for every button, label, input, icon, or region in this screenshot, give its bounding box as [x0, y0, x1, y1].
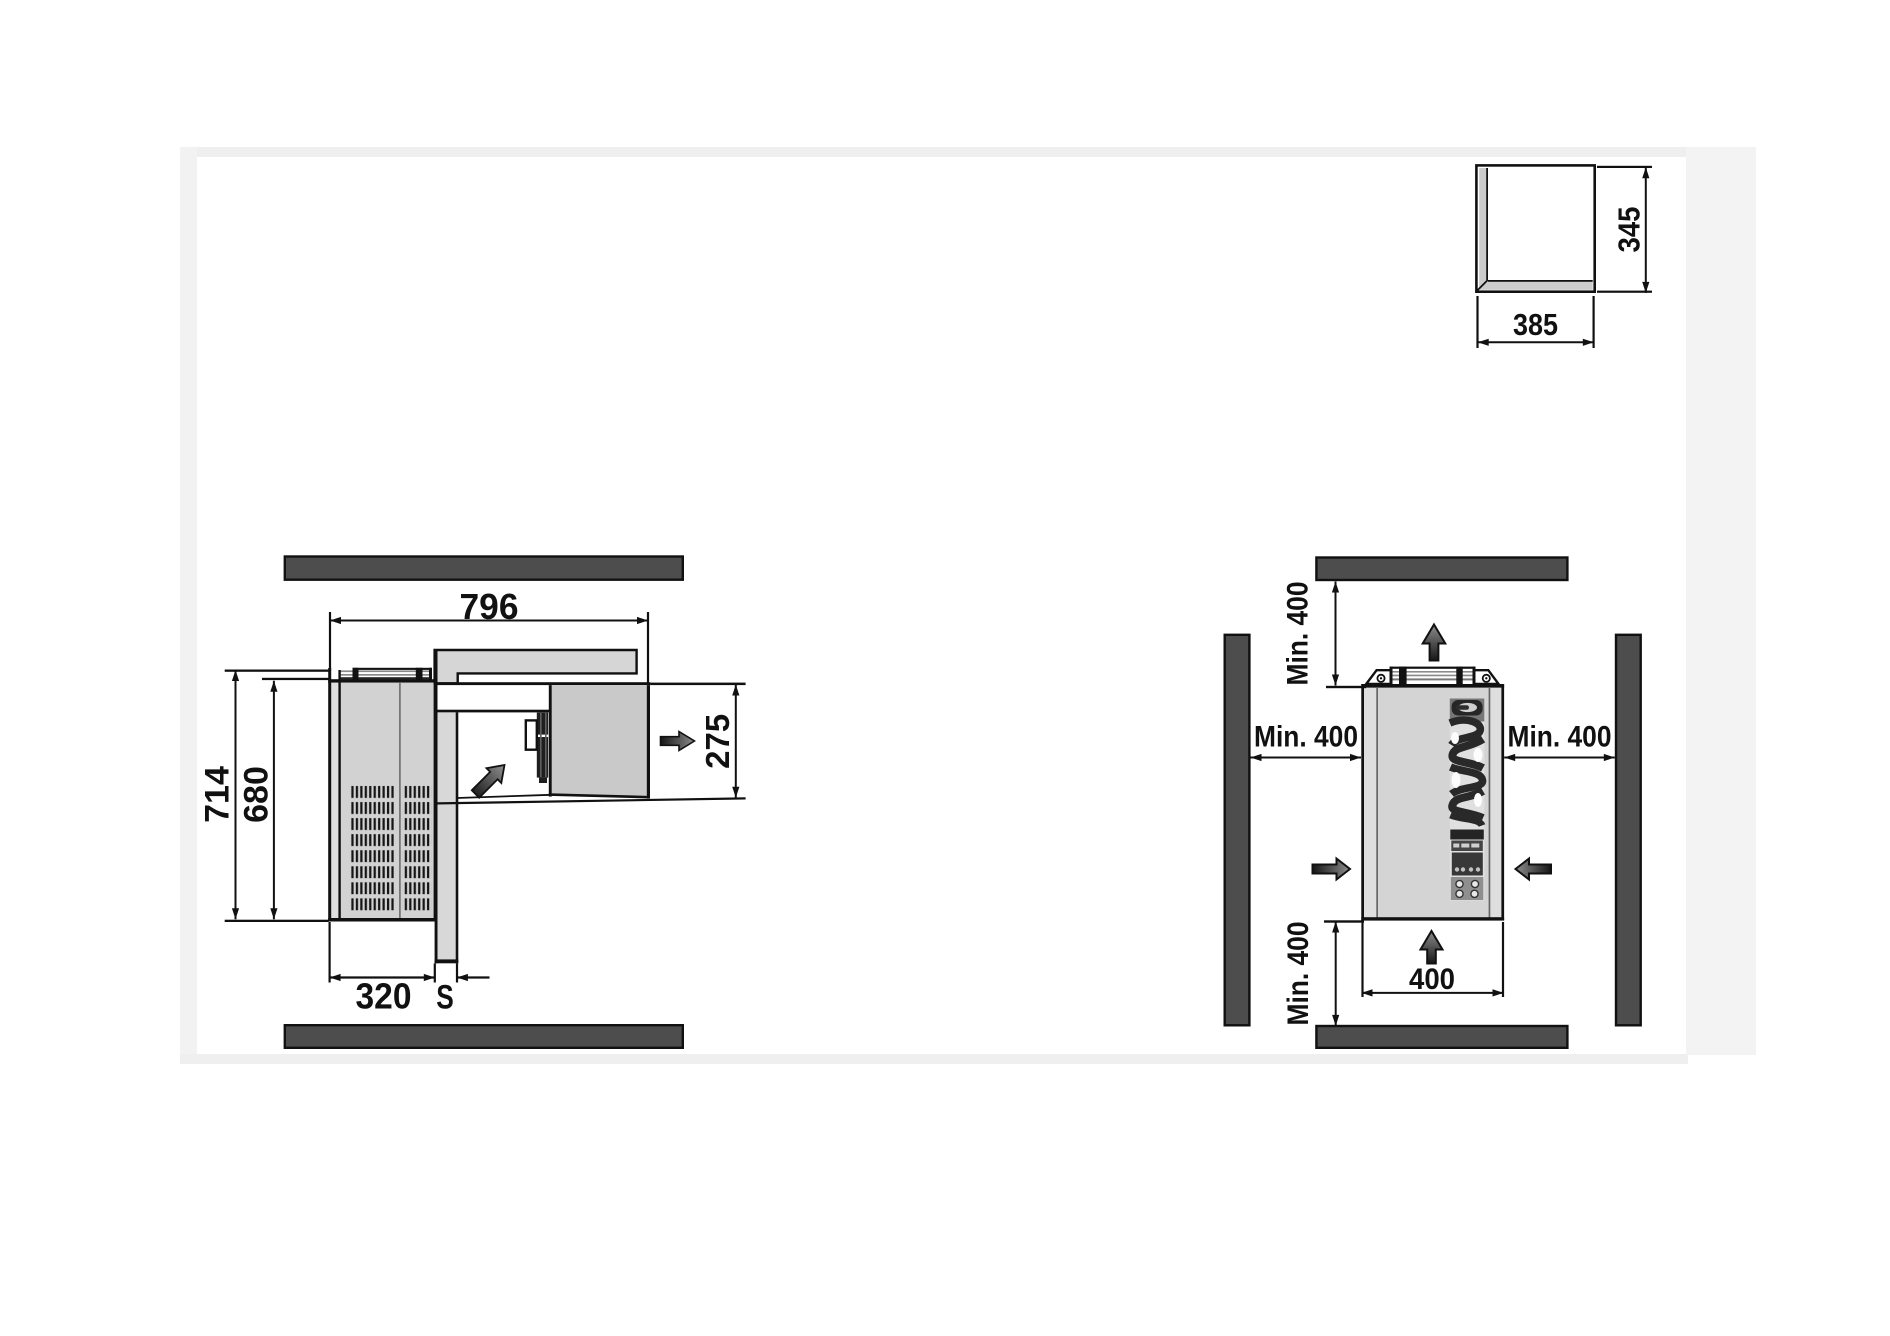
svg-text:680: 680 [237, 766, 275, 823]
svg-text:275: 275 [699, 714, 736, 769]
svg-text:Min. 400: Min. 400 [1508, 720, 1612, 753]
svg-text:385: 385 [1513, 307, 1558, 342]
svg-text:714: 714 [199, 766, 237, 823]
svg-text:345: 345 [1612, 207, 1647, 253]
svg-text:320: 320 [356, 976, 412, 1017]
svg-text:Min. 400: Min. 400 [1254, 720, 1358, 753]
svg-text:Min. 400: Min. 400 [1282, 582, 1315, 686]
svg-text:400: 400 [1409, 963, 1455, 996]
svg-text:S: S [436, 979, 454, 1017]
svg-text:796: 796 [460, 586, 519, 627]
svg-text:Min. 400: Min. 400 [1282, 922, 1315, 1026]
